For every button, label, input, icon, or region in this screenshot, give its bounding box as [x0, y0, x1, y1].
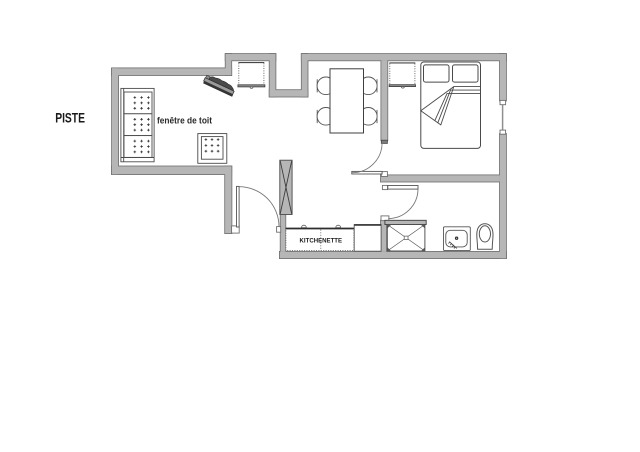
svg-text:KITCHENETTE: KITCHENETTE: [300, 238, 343, 244]
svg-text:fenêtre de toit: fenêtre de toit: [157, 115, 212, 125]
svg-text:PISTE: PISTE: [55, 110, 85, 125]
